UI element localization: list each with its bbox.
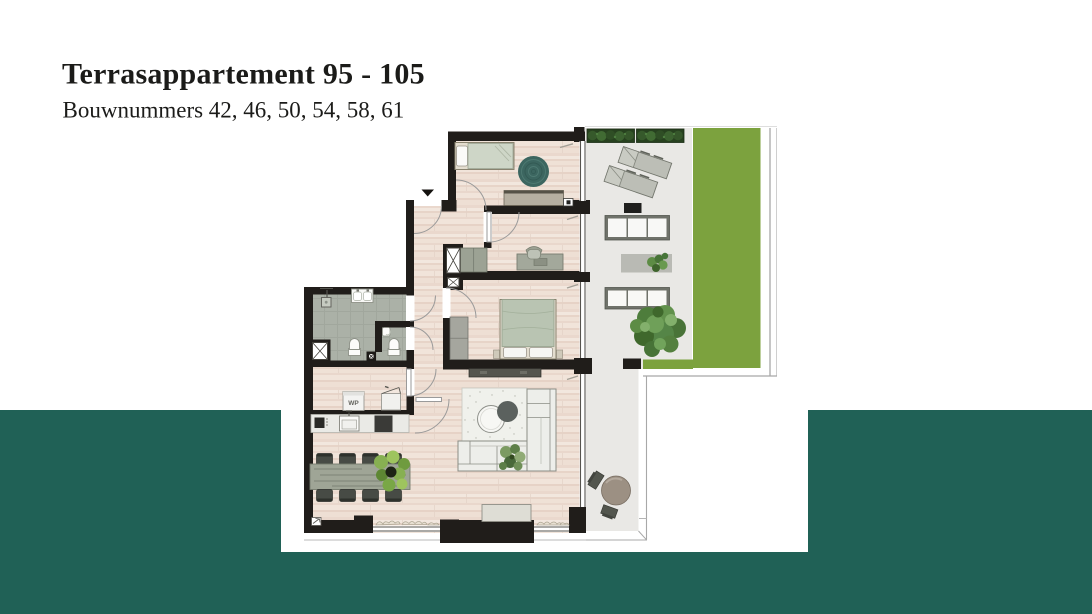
svg-text:Bouwnummers 42, 46, 50, 54, 58: Bouwnummers 42, 46, 50, 54, 58, 61 <box>63 98 405 123</box>
svg-text:WP: WP <box>348 400 359 407</box>
svg-text:Terrasappartement 95 - 105: Terrasappartement 95 - 105 <box>62 58 425 91</box>
